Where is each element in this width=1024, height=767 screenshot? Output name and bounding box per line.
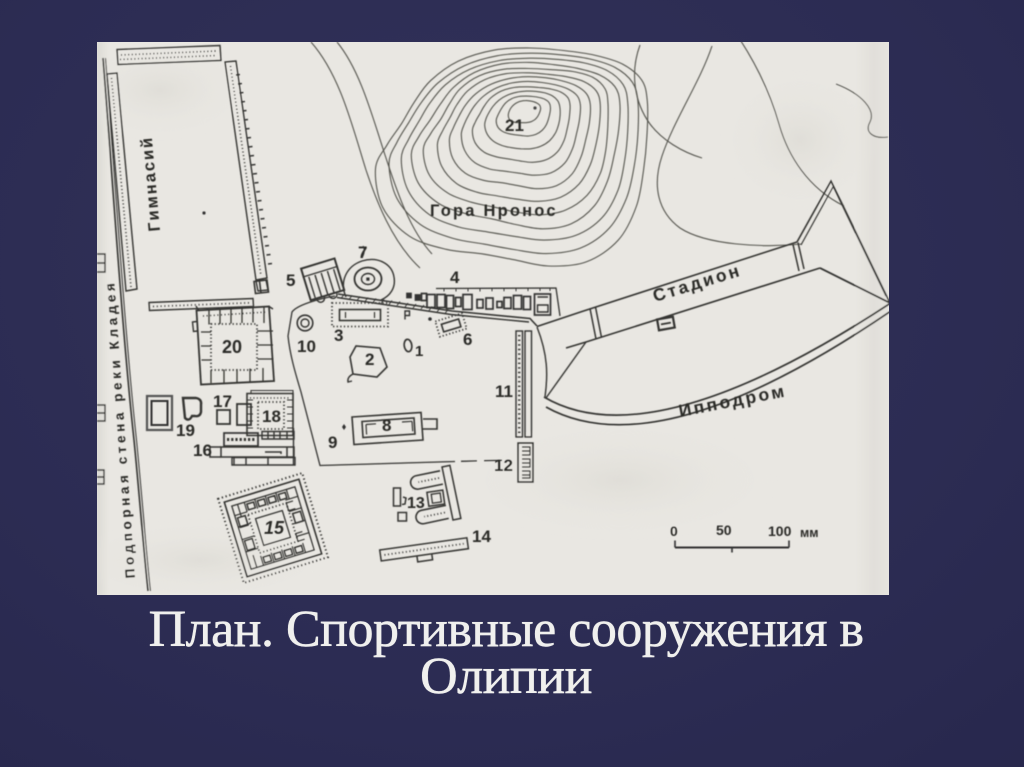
svg-text:19: 19 <box>176 421 195 440</box>
svg-text:17: 17 <box>213 392 232 411</box>
svg-text:3: 3 <box>334 326 343 345</box>
svg-text:15: 15 <box>264 518 285 538</box>
svg-text:5: 5 <box>286 271 295 290</box>
svg-text:8: 8 <box>382 416 391 435</box>
svg-text:100: 100 <box>768 523 792 539</box>
svg-text:2: 2 <box>365 350 374 369</box>
svg-text:13: 13 <box>407 495 425 512</box>
svg-text:6: 6 <box>463 330 472 349</box>
svg-text:20: 20 <box>222 337 242 357</box>
svg-text:0: 0 <box>670 523 678 539</box>
svg-text:1: 1 <box>415 343 423 360</box>
svg-text:50: 50 <box>716 522 732 538</box>
svg-text:16: 16 <box>193 441 212 460</box>
svg-text:12: 12 <box>494 456 513 475</box>
svg-text:10: 10 <box>297 337 316 356</box>
svg-text:11: 11 <box>495 382 513 401</box>
svg-text:мм: мм <box>800 526 819 540</box>
svg-text:7: 7 <box>358 243 367 262</box>
svg-text:21: 21 <box>505 116 524 135</box>
svg-text:4: 4 <box>450 268 460 287</box>
svg-text:Гора Нронос: Гора Нронос <box>430 202 558 220</box>
svg-text:9: 9 <box>328 433 337 452</box>
svg-text:14: 14 <box>472 527 491 546</box>
svg-text:18: 18 <box>262 407 281 426</box>
